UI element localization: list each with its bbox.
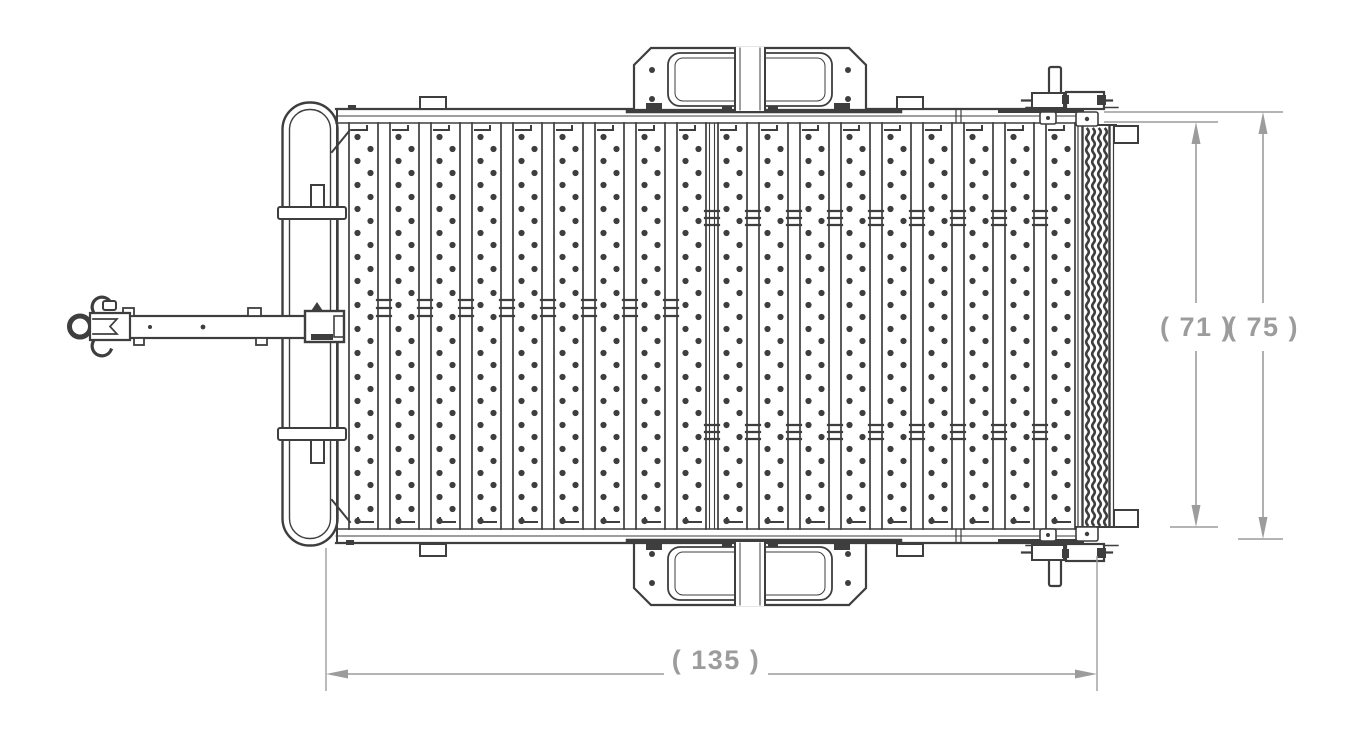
trailer-top-view-drawing: ( 135 ) ( 71 ) ( 75 ) [0, 0, 1366, 729]
dimension-label-overall-length: ( 135 ) [672, 645, 761, 675]
ramp-hinge-bracket [1114, 126, 1138, 143]
plank-splice [992, 211, 1006, 439]
stake-pocket [897, 544, 923, 556]
deck-plank [636, 123, 665, 529]
deck-plank [964, 123, 993, 529]
deck-plank [595, 123, 624, 529]
deck-plank [431, 123, 460, 529]
plank-splice [582, 300, 596, 316]
plank-splice [869, 211, 883, 439]
plank-splice [951, 211, 965, 439]
plank-splice [1033, 211, 1047, 439]
ramp-gate [1076, 125, 1138, 527]
deck-plank [759, 123, 788, 529]
fender-top [634, 47, 866, 111]
fender-bottom [634, 542, 866, 606]
plank-splice [664, 300, 678, 316]
plank-splice [705, 123, 719, 529]
plank-splice [459, 300, 473, 316]
plank-splice [910, 211, 924, 439]
hoop-bracket [311, 440, 324, 463]
deck-plank [923, 123, 952, 529]
deck-plank [513, 123, 542, 529]
hoop-crossbar [278, 428, 346, 440]
hoop-bracket [311, 185, 324, 208]
coupler-ball-socket [70, 316, 91, 337]
deck-plank [677, 123, 706, 529]
plank-splice [746, 211, 760, 439]
deck-plank [390, 123, 419, 529]
dimension-inner-width: ( 71 ) [1104, 122, 1232, 527]
deck-plank [554, 123, 583, 529]
deck-planks [349, 123, 1075, 529]
plank-splice [418, 300, 432, 316]
deck-plank [841, 123, 870, 529]
stake-pocket [420, 97, 446, 109]
ramp-mesh-pattern [1086, 129, 1107, 525]
plank-splice [377, 300, 391, 316]
plank-splice [623, 300, 637, 316]
deck-plank [882, 123, 911, 529]
deck-plank [800, 123, 829, 529]
coupler [70, 297, 131, 356]
deck-plank [472, 123, 501, 529]
safety-chain-hook [92, 342, 111, 356]
ramp-hinge-bracket [1114, 510, 1138, 527]
dimension-label-overall-width: ( 75 ) [1227, 312, 1299, 342]
tongue-beam [123, 302, 344, 345]
coupler-latch-lever [103, 301, 116, 310]
hoop-crossbar [278, 207, 346, 219]
plank-splice [787, 211, 801, 439]
plank-splice [828, 211, 842, 439]
rear-latch-top [1022, 67, 1118, 126]
plank-splice [500, 300, 514, 316]
dimension-label-inner-width: ( 71 ) [1160, 312, 1232, 342]
plank-splice [541, 300, 555, 316]
deck-plank [1046, 123, 1075, 529]
stake-pocket [420, 544, 446, 556]
deck-plank [349, 123, 378, 529]
trailer-drawing-canvas: ( 135 ) ( 71 ) ( 75 ) [0, 0, 1366, 729]
stake-pocket [897, 97, 923, 109]
deck-plank [1005, 123, 1034, 529]
deck-plank [718, 123, 747, 529]
